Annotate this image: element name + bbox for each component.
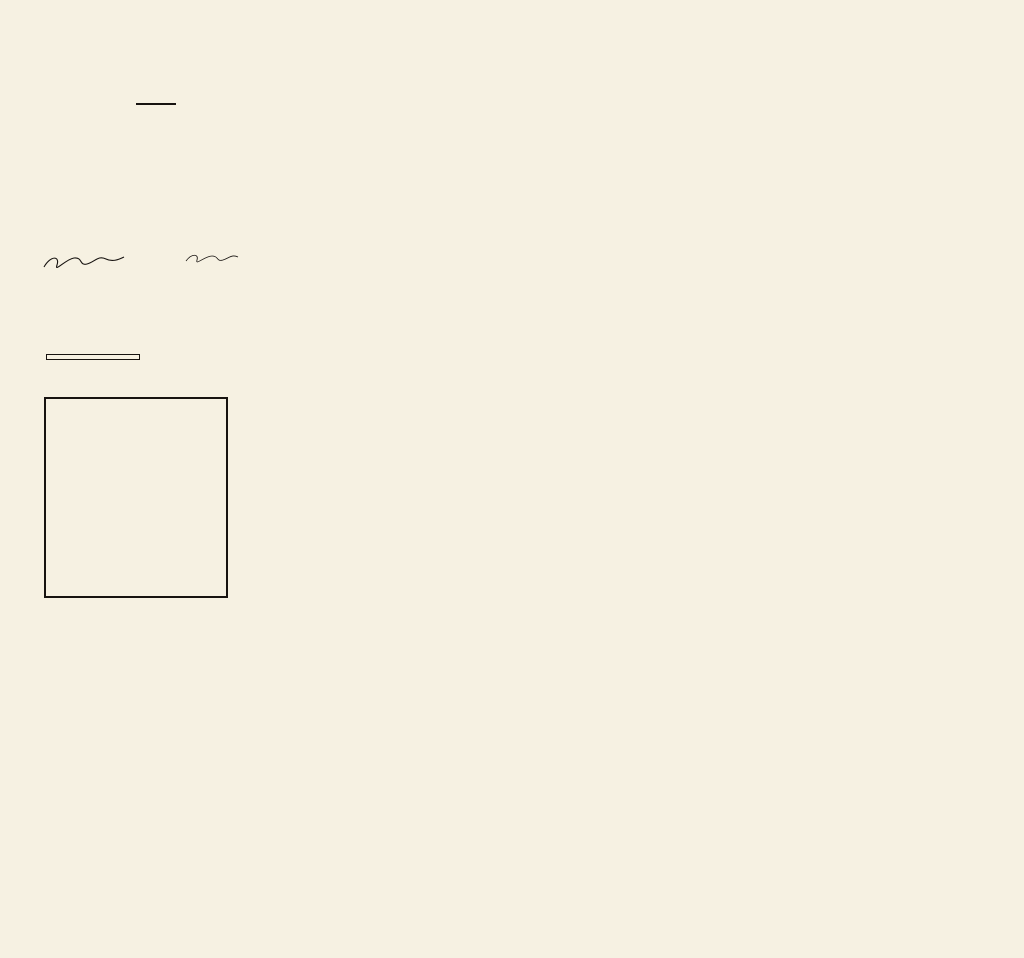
dedication-block [36, 240, 294, 282]
public-works-legend [44, 397, 228, 598]
signature-flourishes [36, 247, 294, 277]
copy-stamp [46, 354, 140, 360]
map-title-block [18, 96, 294, 105]
title-rule [136, 103, 176, 105]
map-sheet [0, 0, 1024, 958]
